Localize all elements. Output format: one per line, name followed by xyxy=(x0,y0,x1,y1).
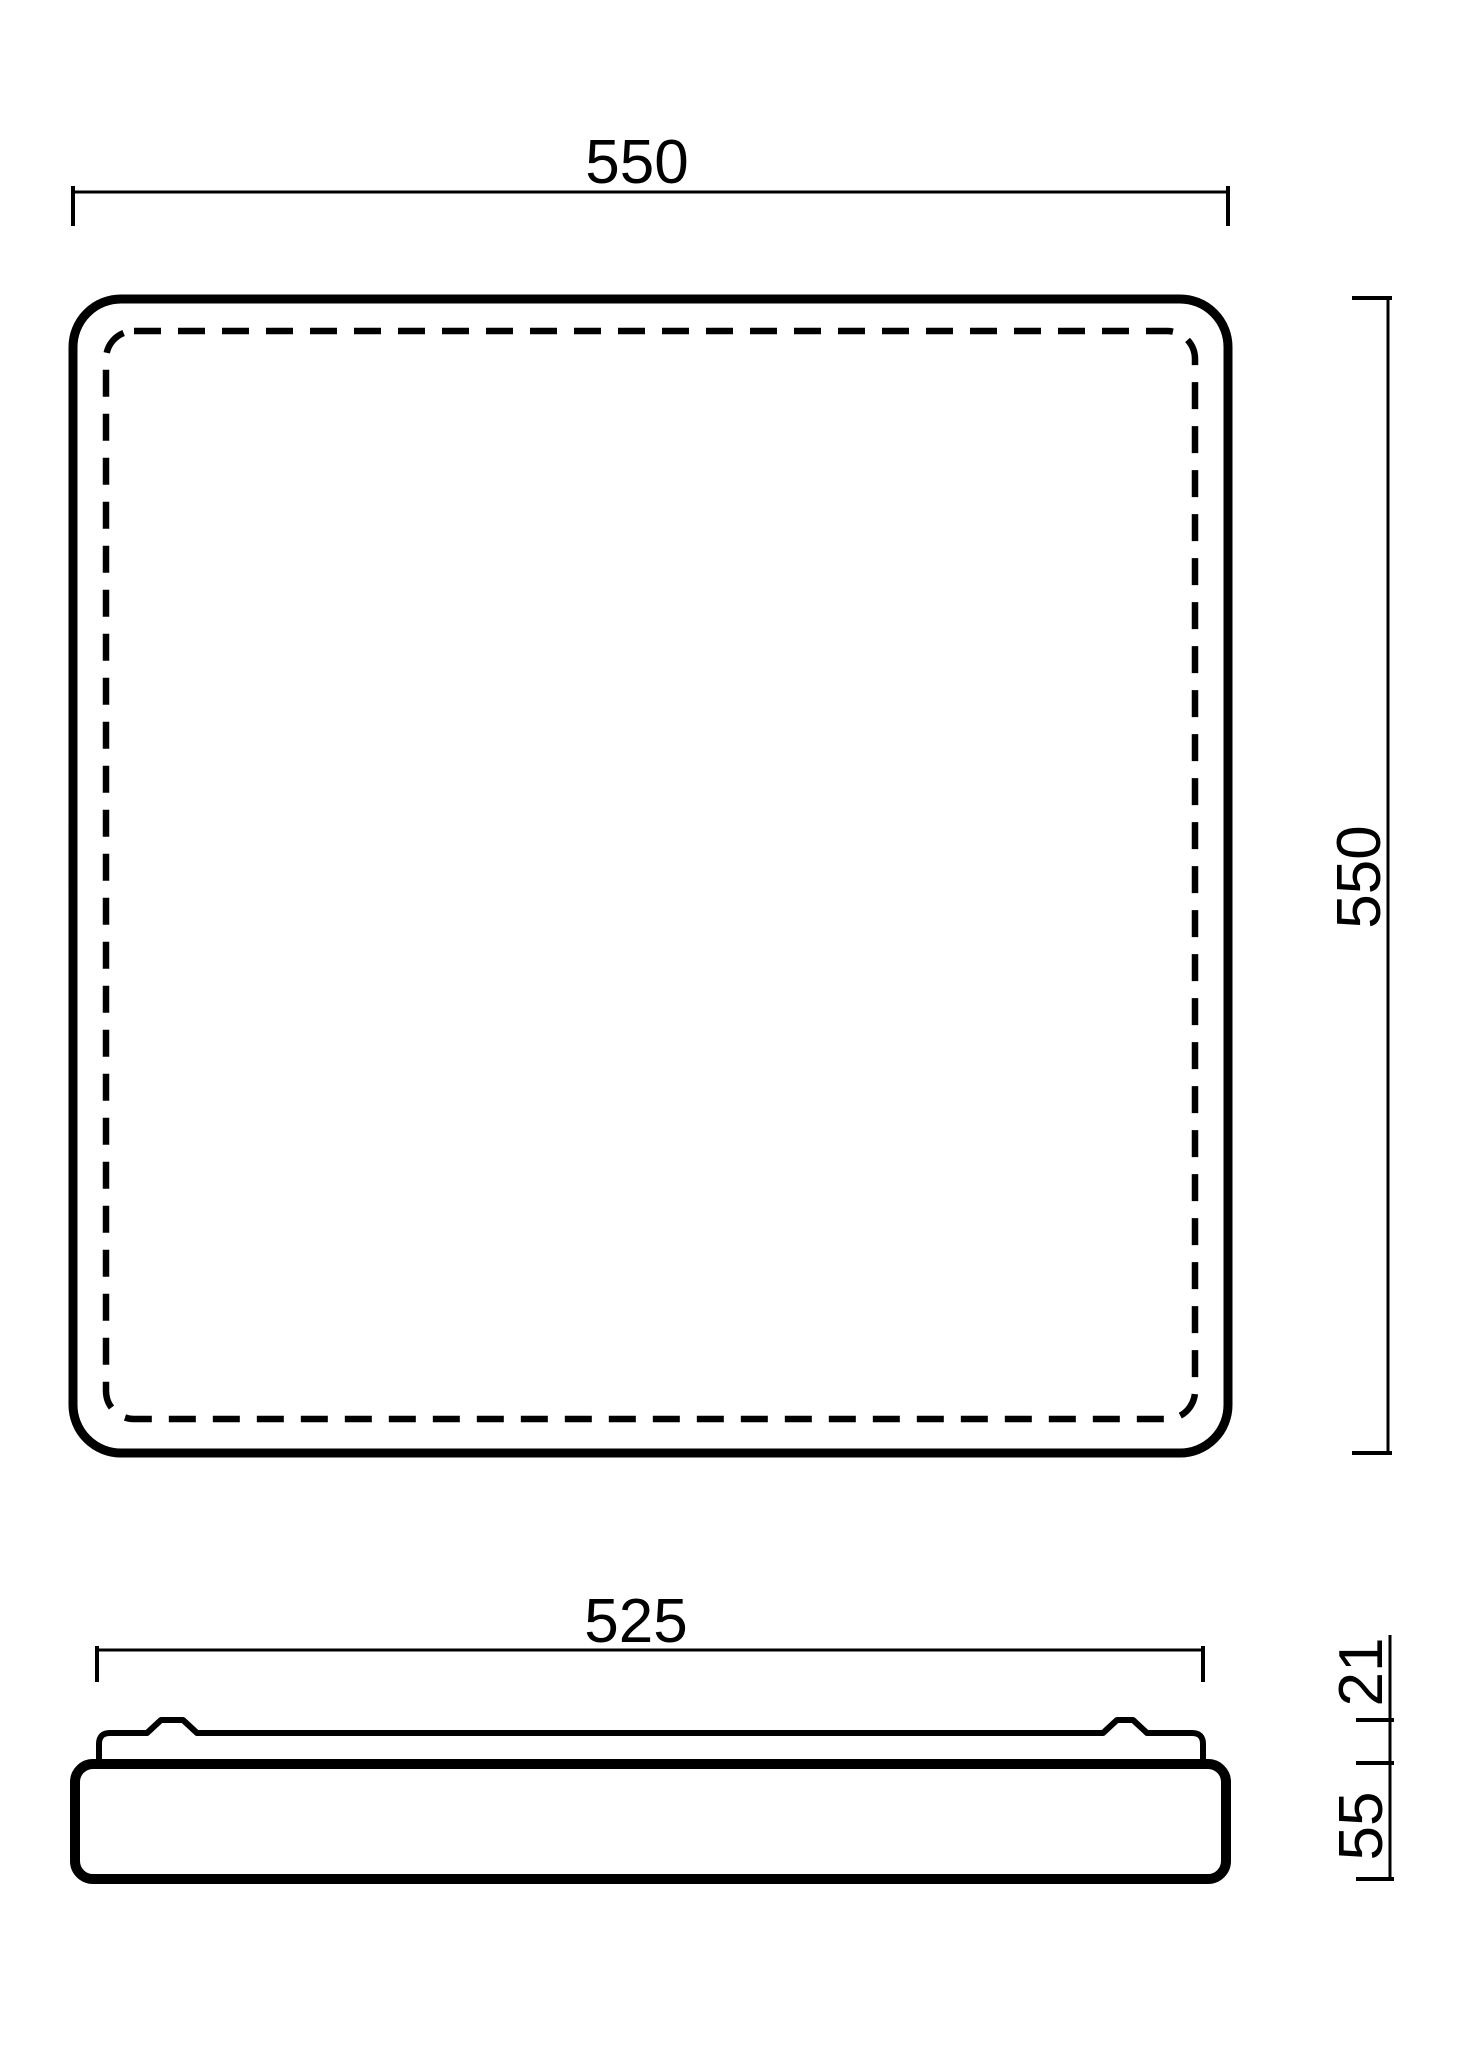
side-view xyxy=(75,1720,1226,1879)
side-width-dimension: 525 xyxy=(97,1587,1203,1682)
plan-inner-dashed-outline xyxy=(106,331,1195,1419)
top-view xyxy=(73,299,1228,1453)
side-view-body-outline xyxy=(75,1764,1226,1879)
side-width-dimension-label: 525 xyxy=(584,1587,687,1656)
right-height-dimension: 550 xyxy=(1325,298,1394,1453)
upper-height-dimension-label: 21 xyxy=(1327,1638,1396,1707)
body-height-dimension-label: 55 xyxy=(1327,1792,1396,1861)
top-width-dimension: 550 xyxy=(73,128,1228,226)
side-height-dimensions: 21 55 xyxy=(1327,1635,1396,1879)
plan-outer-outline xyxy=(73,299,1228,1453)
right-height-dimension-label: 550 xyxy=(1325,825,1394,928)
dimension-drawing: 550 550 525 21 xyxy=(0,0,1458,2063)
top-width-dimension-label: 550 xyxy=(585,128,688,197)
drawing-canvas: 550 550 525 21 xyxy=(0,0,1458,2063)
